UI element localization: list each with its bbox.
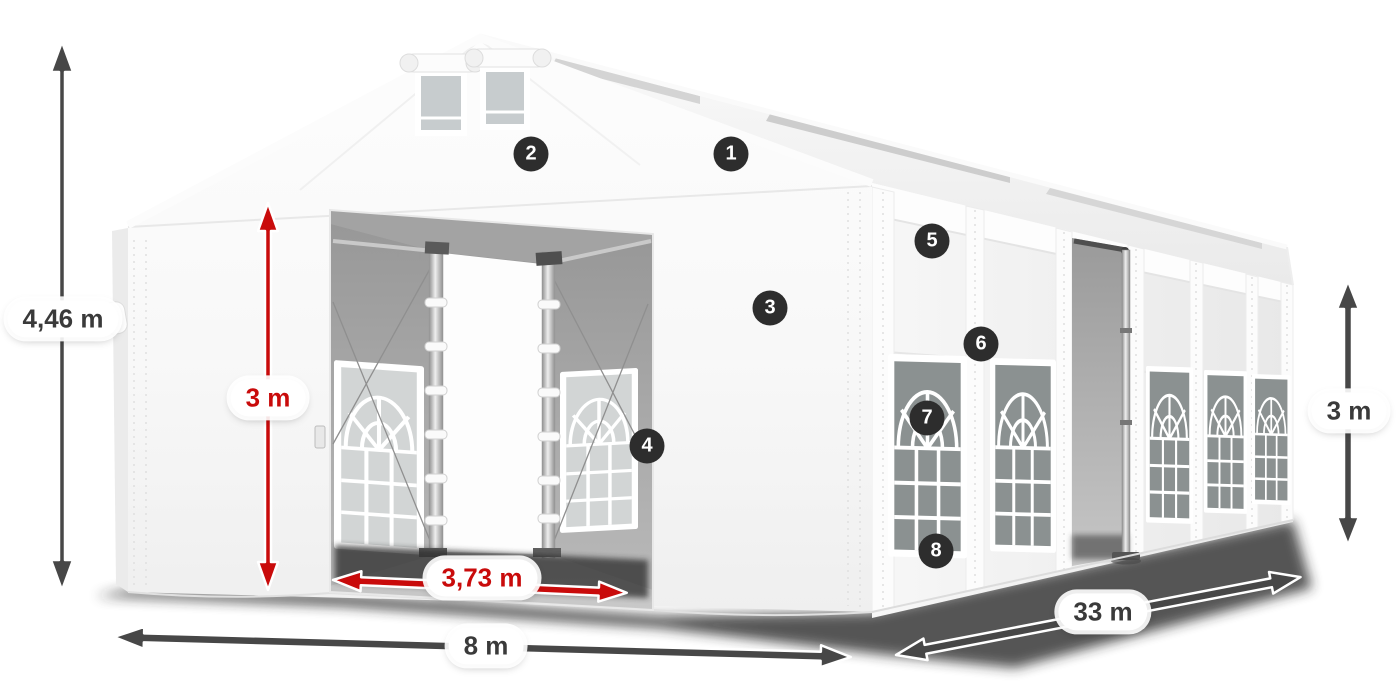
side-window	[888, 354, 967, 558]
side-length-label: 33 m	[1058, 593, 1147, 630]
tent-diagram-stage: 4,46 m 3 m 3,73 m 8 m 33 m 3 m 1 2 3 4 5…	[0, 0, 1400, 700]
door-pole-right	[542, 252, 555, 558]
callout-badge-2[interactable]: 2	[514, 137, 549, 172]
door-leaf-window	[334, 360, 424, 555]
door-latch	[315, 426, 325, 448]
callout-badge-7[interactable]: 7	[910, 401, 945, 436]
side-window	[1204, 370, 1247, 514]
door-leaf-window	[560, 368, 638, 533]
callout-badge-6[interactable]: 6	[964, 327, 999, 362]
side-window	[1146, 366, 1193, 524]
side-window	[990, 358, 1056, 553]
total-height-label: 4,46 m	[8, 300, 119, 337]
callout-badge-4[interactable]: 4	[630, 429, 665, 464]
entrance-width-label: 3,73 m	[427, 559, 538, 596]
open-passage	[443, 253, 542, 554]
side-wall-height-label: 3 m	[1312, 392, 1387, 429]
door-pole-left	[429, 246, 443, 556]
callout-badge-5[interactable]: 5	[915, 224, 950, 259]
callout-badge-3[interactable]: 3	[753, 291, 788, 326]
callout-badge-8[interactable]: 8	[919, 534, 954, 569]
entrance-height-label: 3 m	[231, 379, 306, 416]
callout-badge-1[interactable]: 1	[714, 137, 749, 172]
tent-illustration	[0, 0, 1400, 700]
side-window	[1252, 374, 1291, 505]
front-width-label: 8 m	[449, 627, 524, 664]
front-entrance-opening	[330, 210, 653, 610]
